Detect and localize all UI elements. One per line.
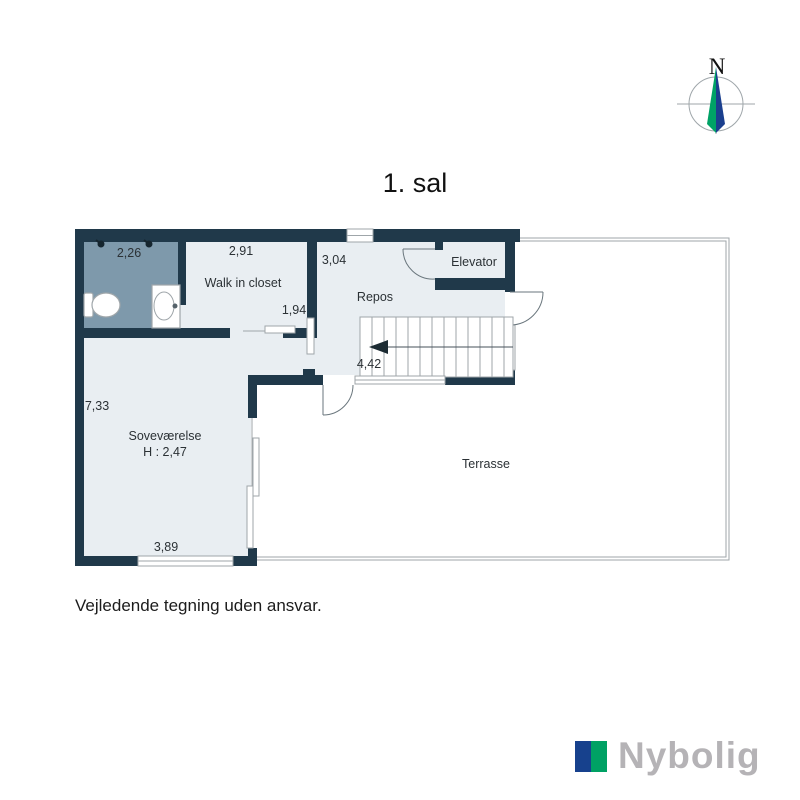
elevator-left-wall-stub: [435, 242, 443, 250]
logo-blue-square: [575, 741, 591, 772]
closet-dim-door: 1,94: [282, 303, 306, 317]
closet-dim-top: 2,91: [229, 244, 253, 258]
stairs-dim: 4,42: [357, 357, 381, 371]
sink-faucet-icon: [173, 304, 178, 309]
terrace-door-east-arc: [510, 292, 543, 325]
elevator-label: Elevator: [451, 255, 497, 269]
bathroom-bottom-wall: [75, 328, 230, 338]
left-wall: [75, 229, 84, 566]
repos-bottom-wall: [248, 375, 323, 385]
closet-label: Walk in closet: [205, 276, 282, 290]
bedroom-label: Soveværelse: [129, 429, 202, 443]
nybolig-logo-text: Nybolig: [618, 735, 761, 777]
terrace-label: Terrasse: [462, 457, 510, 471]
bedroom-dim-bottom: 3,89: [154, 540, 178, 554]
top-wall: [75, 229, 520, 242]
repos-sliding-panel: [307, 318, 314, 354]
elevator-bottom-wall: [435, 278, 515, 290]
bedroom-sliding-panel-1: [253, 438, 259, 496]
closet-repos-wall: [307, 229, 317, 333]
bedroom-bottom-wall-left: [75, 556, 138, 566]
repos-wall-stub: [303, 369, 315, 376]
disclaimer-text: Vejledende tegning uden ansvar.: [75, 596, 322, 616]
terrace-door-south-arc: [323, 385, 353, 415]
bathroom-dim: 2,26: [117, 246, 141, 260]
bedroom-dim-left: 7,33: [85, 399, 109, 413]
bedroom-right-wall-lower: [248, 548, 257, 566]
bedroom-sliding-panel-2: [247, 486, 253, 548]
closet-sliding-panel: [265, 326, 295, 333]
nybolig-logo: Nybolig: [575, 735, 761, 777]
repos-label: Repos: [357, 290, 393, 304]
repos-dim: 3,04: [322, 253, 346, 267]
stairs: [355, 317, 513, 384]
floorplan-page: 1. sal N: [0, 0, 800, 800]
logo-green-square: [591, 741, 607, 772]
compass: N: [677, 54, 755, 134]
nybolig-logo-mark: [575, 741, 607, 772]
toilet-bowl-icon: [92, 293, 120, 317]
bedroom-right-wall-upper: [248, 375, 257, 418]
floorplan-drawing: N: [0, 0, 800, 800]
bedroom-ceiling-height: H : 2,47: [143, 445, 187, 459]
